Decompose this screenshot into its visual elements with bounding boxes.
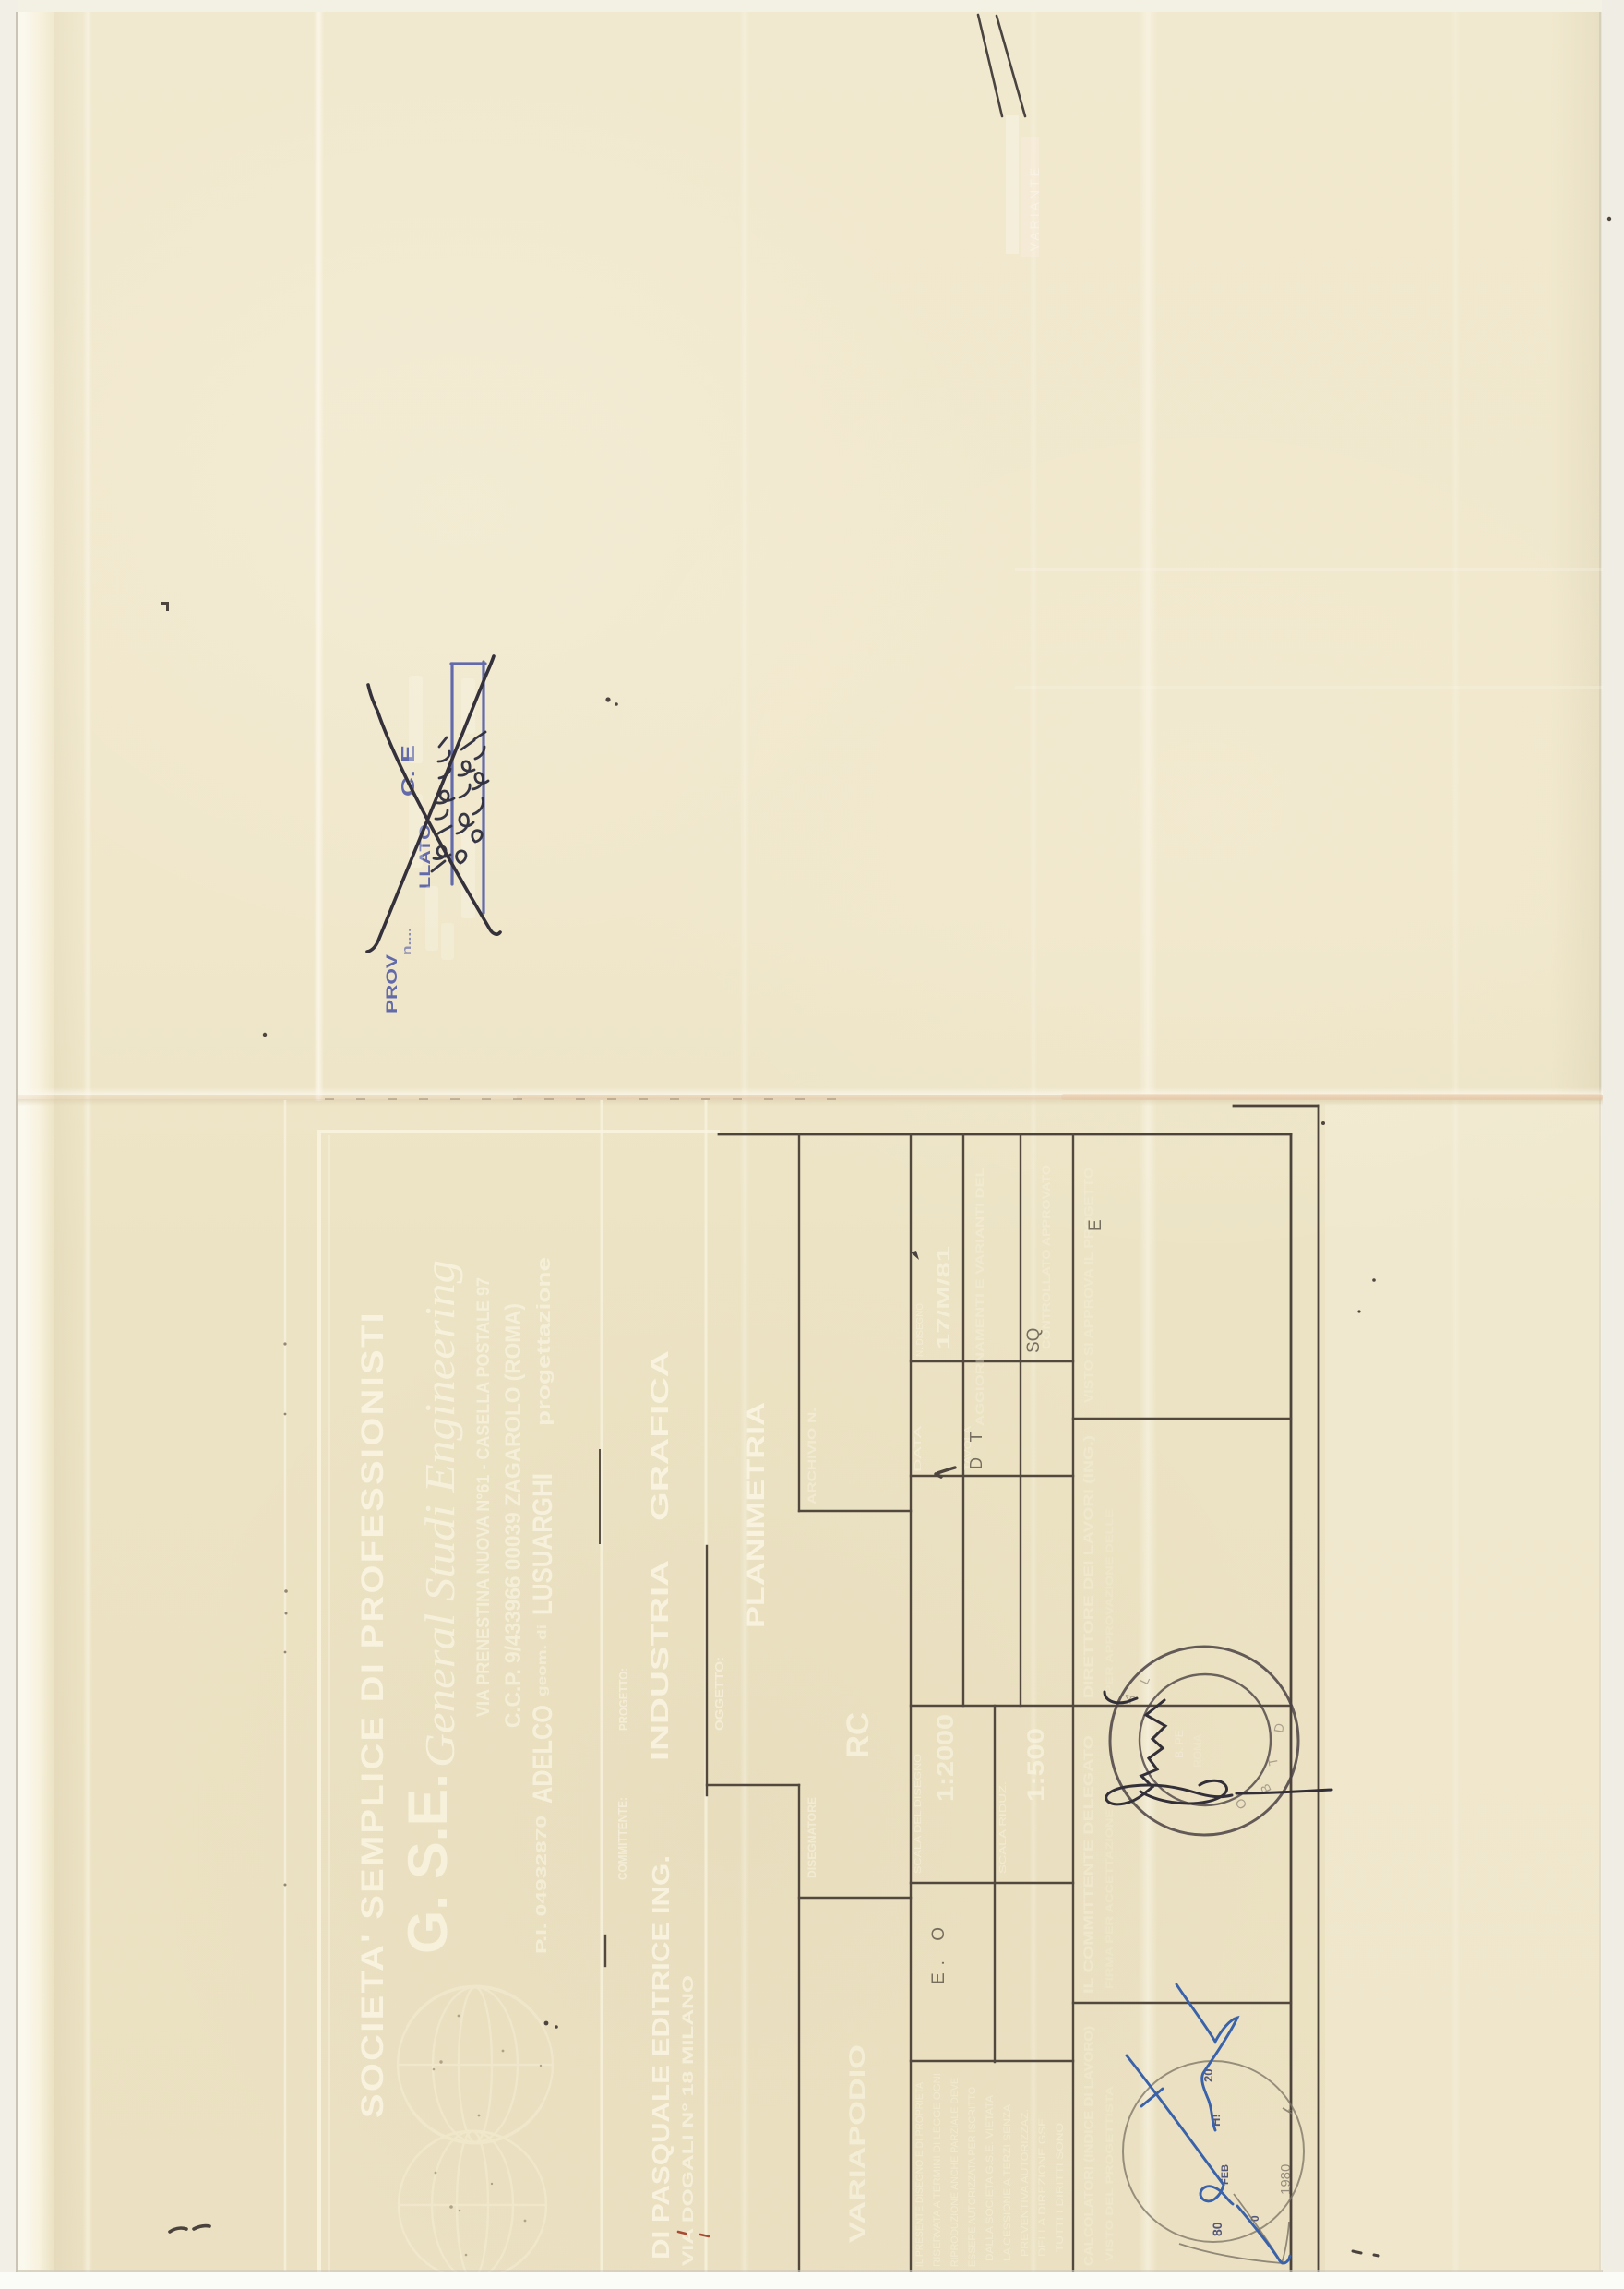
svg-text:PROGETTO:: PROGETTO: (616, 1668, 630, 1731)
svg-text:1980: 1980 (1278, 2164, 1294, 2195)
svg-text:PER APPROVAZIONE DELLE: PER APPROVAZIONE DELLE (1105, 1509, 1116, 1694)
svg-text:progettazione: progettazione (534, 1257, 555, 1426)
svg-text:PREVENTIVA AUTORIZZAZ.: PREVENTIVA AUTORIZZAZ. (1020, 2109, 1031, 2257)
svg-text:1:500: 1:500 (1023, 1728, 1049, 1802)
svg-text:FIRMA PER ACCETTAZIONE: FIRMA PER ACCETTAZIONE (1105, 1809, 1116, 1989)
svg-text:LUSUARGHI: LUSUARGHI (528, 1473, 558, 1615)
svg-text:General Studi Engineering: General Studi Engineering (416, 1260, 463, 1768)
svg-text:VARIAPODIO: VARIAPODIO (845, 2044, 870, 2243)
svg-text:C.C.P. 9/433966 00039 ZAGAROLO: C.C.P. 9/433966 00039 ZAGAROLO (ROMA) (501, 1303, 526, 1728)
svg-text:17/M/81: 17/M/81 (935, 1245, 954, 1349)
svg-text:OGGETTO:: OGGETTO: (712, 1657, 726, 1731)
svg-text:P.I. 04932870: P.I. 04932870 (534, 1816, 550, 1954)
svg-text:AGGIORNAMENTI E VARIANTI DEL: AGGIORNAMENTI E VARIANTI DEL (973, 1168, 986, 1426)
svg-text:n....: n.... (400, 928, 413, 955)
svg-text:SCALA RIDUZ.: SCALA RIDUZ. (998, 1781, 1009, 1874)
svg-text:PLANIMETRIA: PLANIMETRIA (742, 1402, 770, 1628)
svg-text:RIPRODUZIONE ANCHE PARZIALE DE: RIPRODUZIONE ANCHE PARZIALE DEVE (949, 2078, 961, 2267)
svg-text:E. O: E. O (929, 1920, 949, 1984)
svg-text:ESSERE AUTORIZZATA PER ISCRITT: ESSERE AUTORIZZATA PER ISCRITTO (967, 2087, 978, 2267)
svg-text:DELLA DIREZIONE GSE: DELLA DIREZIONE GSE (1037, 2118, 1048, 2257)
svg-text:E: E (1086, 1219, 1105, 1231)
svg-text:B. PE: B. PE (1173, 1730, 1186, 1758)
svg-text:DISEGNATORE: DISEGNATORE (806, 1797, 818, 1878)
svg-text:80: 80 (1210, 2222, 1224, 2236)
svg-text:SCALA DEL DISEGNO: SCALA DEL DISEGNO (913, 1754, 924, 1874)
svg-text:1:2000: 1:2000 (933, 1714, 959, 1802)
svg-text:G. S.E.: G. S.E. (397, 1773, 459, 1954)
svg-text:VIA DOGALI N° 18 MILANO: VIA DOGALI N° 18 MILANO (679, 1975, 697, 2266)
svg-text:IL PRESENTE DISEGNO E DI PROPR: IL PRESENTE DISEGNO E DI PROPRIETA (914, 2081, 925, 2267)
svg-text:D: D (1271, 1722, 1287, 1734)
svg-text:N. DISEGNO: N. DISEGNO (915, 1303, 925, 1357)
svg-text:CONTROLLATO APPROVATO: CONTROLLATO APPROVATO (1040, 1165, 1053, 1349)
svg-text:PROV: PROV (383, 953, 400, 1013)
svg-text:VIA PRENESTINA NUOVA N°61 - CA: VIA PRENESTINA NUOVA N°61 - CASELLA POST… (474, 1277, 494, 1717)
svg-text:LA CESSIONE A TERZI SENZA: LA CESSIONE A TERZI SENZA (1002, 2103, 1013, 2261)
svg-text:DIRETTORE DEI LAVORI (ING.): DIRETTORE DEI LAVORI (ING.) (1081, 1435, 1095, 1698)
svg-text:D T: D T (967, 1426, 985, 1469)
svg-text:L: L (1136, 1673, 1152, 1686)
svg-text:ADELCO: ADELCO (528, 1705, 558, 1804)
svg-text:VISTO DEL PROGETTISTA: VISTO DEL PROGETTISTA (1105, 2086, 1116, 2261)
svg-text:RISERVATA A TERMINI DI LEGGE O: RISERVATA A TERMINI DI LEGGE OGNI (932, 2073, 943, 2267)
svg-text:ROMA: ROMA (1191, 1734, 1204, 1768)
svg-text:CALCOLATORI (INDICE DI LAVORO): CALCOLATORI (INDICE DI LAVORO) (1081, 2026, 1095, 2266)
svg-text:VISTO SI APPROVA IL PROGETTO: VISTO SI APPROVA IL PROGETTO (1081, 1168, 1095, 1403)
svg-text:ARCHIVIO N.: ARCHIVIO N. (806, 1408, 818, 1504)
svg-text:SOCIETA' SEMPLICE DI PROFESSIO: SOCIETA' SEMPLICE DI PROFESSIONISTI (355, 1311, 390, 2118)
svg-text:RC: RC (841, 1712, 876, 1758)
svg-text:INDUSTRIA: INDUSTRIA (646, 1560, 674, 1761)
svg-text:VARIANTE: VARIANTE (1027, 165, 1042, 251)
svg-text:DALLA SOCIETA G.S.E. VIETATA: DALLA SOCIETA G.S.E. VIETATA (985, 2094, 996, 2261)
svg-text:COMMITTENTE:: COMMITTENTE: (615, 1797, 629, 1880)
svg-text:GRAFICA: GRAFICA (646, 1350, 674, 1521)
svg-text:DATA: DATA (913, 1425, 924, 1472)
svg-text:geom. di: geom. di (534, 1624, 549, 1696)
svg-text:IL COMMITTENTE DELEGATO: IL COMMITTENTE DELEGATO (1081, 1735, 1095, 1994)
svg-text:TUTTI I DIRITTI SONO: TUTTI I DIRITTI SONO (1055, 2122, 1066, 2252)
svg-text:SQ: SQ (1024, 1328, 1044, 1353)
svg-text:DI PASQUALE EDITRICE ING.: DI PASQUALE EDITRICE ING. (647, 1855, 675, 2259)
